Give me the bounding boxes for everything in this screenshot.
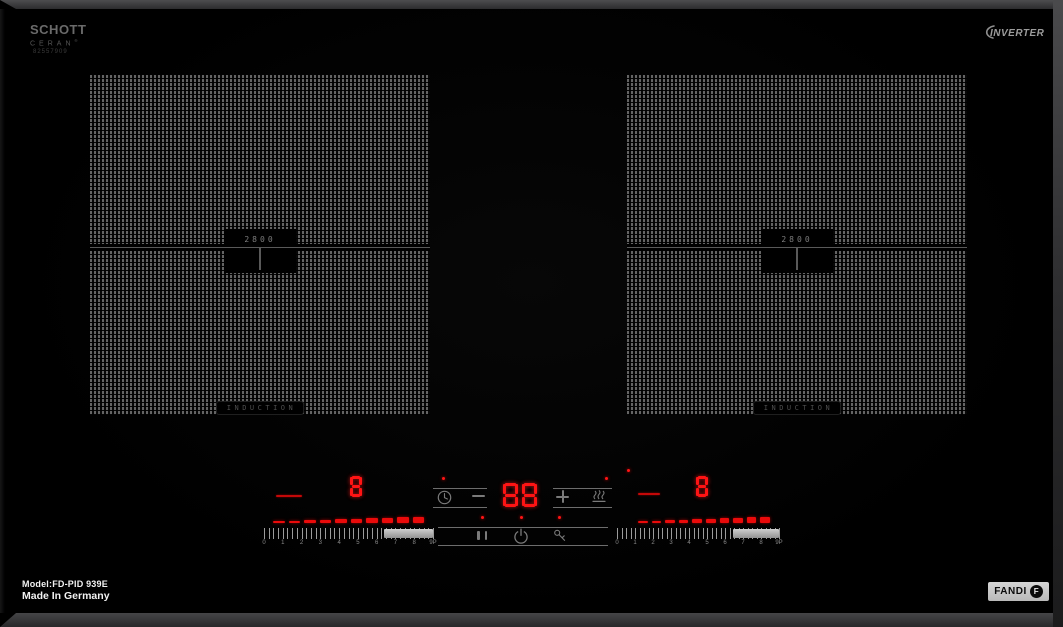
power-dash (273, 521, 285, 523)
slider-tick (725, 528, 726, 539)
right-zone-active-dot (627, 469, 630, 472)
power-dash (706, 519, 716, 523)
induction-badge: INDUCTION (216, 401, 304, 415)
slider-tick (730, 528, 731, 539)
slider-tick (358, 528, 359, 539)
slider-tick (381, 528, 382, 539)
slider-tick (353, 528, 354, 539)
power-dash (665, 520, 675, 523)
slider-tick (671, 528, 672, 539)
power-dash (638, 521, 648, 523)
induction-badge-label: INDUCTION (764, 404, 833, 412)
fandi-logo: FANDI F (988, 582, 1049, 601)
top-bezel-edge (0, 0, 1063, 9)
keep-warm-button[interactable] (590, 488, 608, 509)
display-indicator-dot (520, 516, 523, 519)
slider-label: 4 (337, 540, 340, 546)
slider-label: 3 (669, 540, 672, 546)
zone-power-rating: 2800 (781, 235, 812, 244)
slider-tick (316, 528, 317, 539)
power-dash (366, 518, 378, 523)
slider-tick (667, 528, 668, 539)
ceran-wordmark: CERAN® (30, 38, 86, 47)
fandi-monogram-icon: F (1030, 585, 1043, 598)
model-number: Model:FD-PID 939E (22, 579, 110, 589)
slider-tick (302, 528, 303, 539)
slider-tick (635, 528, 636, 539)
clock-icon (437, 490, 452, 505)
slider-tick (372, 528, 373, 539)
right-slider-touch-bar[interactable] (733, 529, 779, 538)
model-info: Model:FD-PID 939E Made In Germany (22, 579, 110, 602)
zone-center-cross (259, 248, 261, 270)
keep-warm-indicator-dot (605, 477, 608, 480)
schott-serial-code: 82557909 (33, 49, 86, 55)
slider-tick (698, 528, 699, 539)
power-icon (513, 528, 529, 544)
power-dash (733, 518, 743, 523)
inverter-logo: INVERTER (982, 24, 1054, 44)
minus-indicator-dot (481, 516, 484, 519)
slider-tick (325, 528, 326, 539)
power-dash (351, 519, 363, 523)
slider-tick (283, 528, 284, 539)
slider-tick (694, 528, 695, 539)
power-dash (679, 520, 689, 523)
left-slider-touch-bar[interactable] (384, 529, 433, 538)
inverter-wordmark: INVERTER (990, 28, 1044, 39)
slider-tick (644, 528, 645, 539)
slider-tick (311, 528, 312, 539)
power-dash (413, 517, 425, 523)
right-bezel-edge (1053, 0, 1063, 627)
keep-warm-icon (590, 488, 608, 504)
origin-label: Made In Germany (22, 590, 110, 602)
cooking-zone-left: 2800 INDUCTION (90, 75, 430, 415)
schott-wordmark: SCHOTT (30, 22, 86, 37)
slider-tick (622, 528, 623, 539)
slider-tick (334, 528, 335, 539)
induction-badge: INDUCTION (753, 401, 841, 415)
slider-label: 2 (300, 540, 303, 546)
plus-button[interactable] (556, 490, 569, 503)
slider-label: 5 (705, 540, 708, 546)
slider-label: 0 (262, 540, 265, 546)
slider-label: 9P (775, 540, 782, 546)
right-zone-indicator-mark (638, 493, 660, 495)
slider-tick (703, 528, 704, 539)
slider-label: 7 (741, 540, 744, 546)
slider-tick (685, 528, 686, 539)
schott-ceran-logo: SCHOTT CERAN® 82557909 (30, 22, 86, 55)
right-power-level-ramp (638, 513, 770, 523)
slider-label: 5 (356, 540, 359, 546)
power-dash (289, 521, 301, 523)
slider-tick (292, 528, 293, 539)
slider-tick (273, 528, 274, 539)
pause-icon (485, 531, 488, 540)
seven-seg-digit (350, 476, 362, 497)
left-bezel-edge (0, 9, 5, 613)
slider-tick (779, 528, 780, 539)
slider-tick (662, 528, 663, 539)
slider-tick (330, 528, 331, 539)
slider-label: 6 (375, 540, 378, 546)
timer-button[interactable] (437, 490, 452, 510)
slider-label: 1 (281, 540, 284, 546)
power-dash (335, 519, 347, 523)
slider-label: 6 (723, 540, 726, 546)
slider-tick (320, 528, 321, 539)
slider-tick (339, 528, 340, 539)
slider-tick (344, 528, 345, 539)
timer-left-indicator-dot (442, 477, 445, 480)
slider-tick (377, 528, 378, 539)
slider-tick (269, 528, 270, 539)
power-dash (397, 517, 409, 523)
slider-tick (676, 528, 677, 539)
slider-tick (631, 528, 632, 539)
slider-tick (626, 528, 627, 539)
slider-tick (306, 528, 307, 539)
zone-power-rating: 2800 (244, 235, 275, 244)
cooking-zone-right: 2800 INDUCTION (627, 75, 967, 415)
zone-center-cross (796, 248, 798, 270)
slider-label: 3 (319, 540, 322, 546)
slider-label: 4 (687, 540, 690, 546)
power-dash (760, 517, 770, 523)
slider-label: 0 (615, 540, 618, 546)
child-lock-button[interactable] (553, 529, 569, 548)
slider-label: 9P (429, 540, 436, 546)
bottom-bezel-edge (0, 613, 1063, 627)
slider-tick (653, 528, 654, 539)
left-power-level-ramp (273, 513, 424, 523)
slider-tick (716, 528, 717, 539)
slider-label: 1 (633, 540, 636, 546)
slider-tick (433, 528, 434, 539)
slider-tick (617, 528, 618, 539)
slider-label: 7 (394, 540, 397, 546)
slider-tick (297, 528, 298, 539)
power-dash (692, 519, 702, 523)
slider-label: 8 (413, 540, 416, 546)
slider-tick (721, 528, 722, 539)
induction-badge-label: INDUCTION (227, 404, 296, 412)
power-dash (652, 521, 662, 523)
left-power-slider[interactable]: 0123456789P (264, 528, 433, 548)
slider-tick (707, 528, 708, 539)
seven-seg-digit (503, 483, 518, 507)
seven-seg-digit (696, 476, 708, 497)
minus-button[interactable] (472, 495, 485, 497)
right-power-slider[interactable]: 0123456789P (617, 528, 779, 548)
power-dash (382, 518, 394, 523)
slider-tick (689, 528, 690, 539)
key-lock-icon (553, 529, 569, 543)
power-dash (320, 520, 332, 523)
slider-tick (680, 528, 681, 539)
timer-display (503, 483, 537, 507)
slider-tick (649, 528, 650, 539)
slider-tick (278, 528, 279, 539)
slider-tick (640, 528, 641, 539)
power-dash (720, 518, 730, 523)
slider-tick (712, 528, 713, 539)
plus-indicator-dot (558, 516, 561, 519)
slider-tick (363, 528, 364, 539)
left-zone-level-display (350, 476, 362, 497)
left-zone-indicator-mark (276, 495, 302, 497)
slider-tick (367, 528, 368, 539)
right-zone-level-display (696, 476, 708, 497)
power-button[interactable] (513, 528, 529, 549)
power-dash (304, 520, 316, 523)
timer-group-top-line (433, 488, 487, 489)
pause-button[interactable] (477, 531, 487, 540)
slider-tick (349, 528, 350, 539)
seven-seg-digit (522, 483, 537, 507)
induction-cooktop: SCHOTT CERAN® 82557909 INVERTER 2800 IND… (0, 0, 1063, 627)
slider-tick (658, 528, 659, 539)
fandi-wordmark: FANDI (994, 586, 1027, 597)
slider-label: 8 (759, 540, 762, 546)
slider-tick (287, 528, 288, 539)
pause-icon (477, 531, 480, 540)
slider-label: 2 (651, 540, 654, 546)
slider-tick (264, 528, 265, 539)
power-dash (747, 517, 757, 523)
